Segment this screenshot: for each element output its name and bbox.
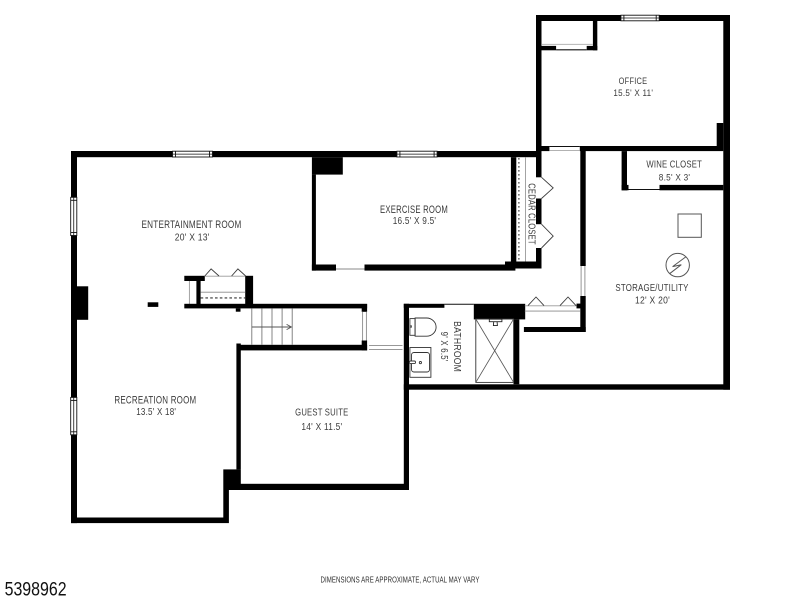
- svg-text:13.5' X 18': 13.5' X 18': [136, 407, 176, 418]
- svg-text:20' X 13': 20' X 13': [175, 232, 210, 243]
- svg-text:WINE CLOSET: WINE CLOSET: [646, 160, 702, 171]
- svg-text:14' X 11.5': 14' X 11.5': [301, 422, 342, 433]
- svg-text:EXERCISE ROOM: EXERCISE ROOM: [380, 204, 448, 216]
- svg-text:ENTERTAINMENT ROOM: ENTERTAINMENT ROOM: [142, 219, 242, 231]
- svg-text:8.5' X 3': 8.5' X 3': [659, 172, 691, 183]
- svg-text:DIMENSIONS ARE APPROXIMATE, AC: DIMENSIONS ARE APPROXIMATE, ACTUAL MAY V…: [321, 576, 480, 585]
- svg-text:OFFICE: OFFICE: [619, 76, 648, 86]
- svg-text:12' X 20': 12' X 20': [635, 296, 670, 307]
- svg-text:15.5' X 11': 15.5' X 11': [613, 88, 653, 98]
- svg-text:GUEST SUITE: GUEST SUITE: [295, 408, 348, 419]
- svg-text:5398962: 5398962: [5, 579, 67, 600]
- svg-text:CEDAR CLOSET: CEDAR CLOSET: [526, 183, 537, 245]
- svg-text:RECREATION ROOM: RECREATION ROOM: [114, 394, 196, 406]
- svg-text:9' X 6.5': 9' X 6.5': [438, 332, 449, 362]
- svg-text:STORAGE/UTILITY: STORAGE/UTILITY: [615, 283, 688, 294]
- svg-text:BATHROOM: BATHROOM: [451, 321, 462, 372]
- svg-text:16.5' X 9.5': 16.5' X 9.5': [393, 216, 437, 227]
